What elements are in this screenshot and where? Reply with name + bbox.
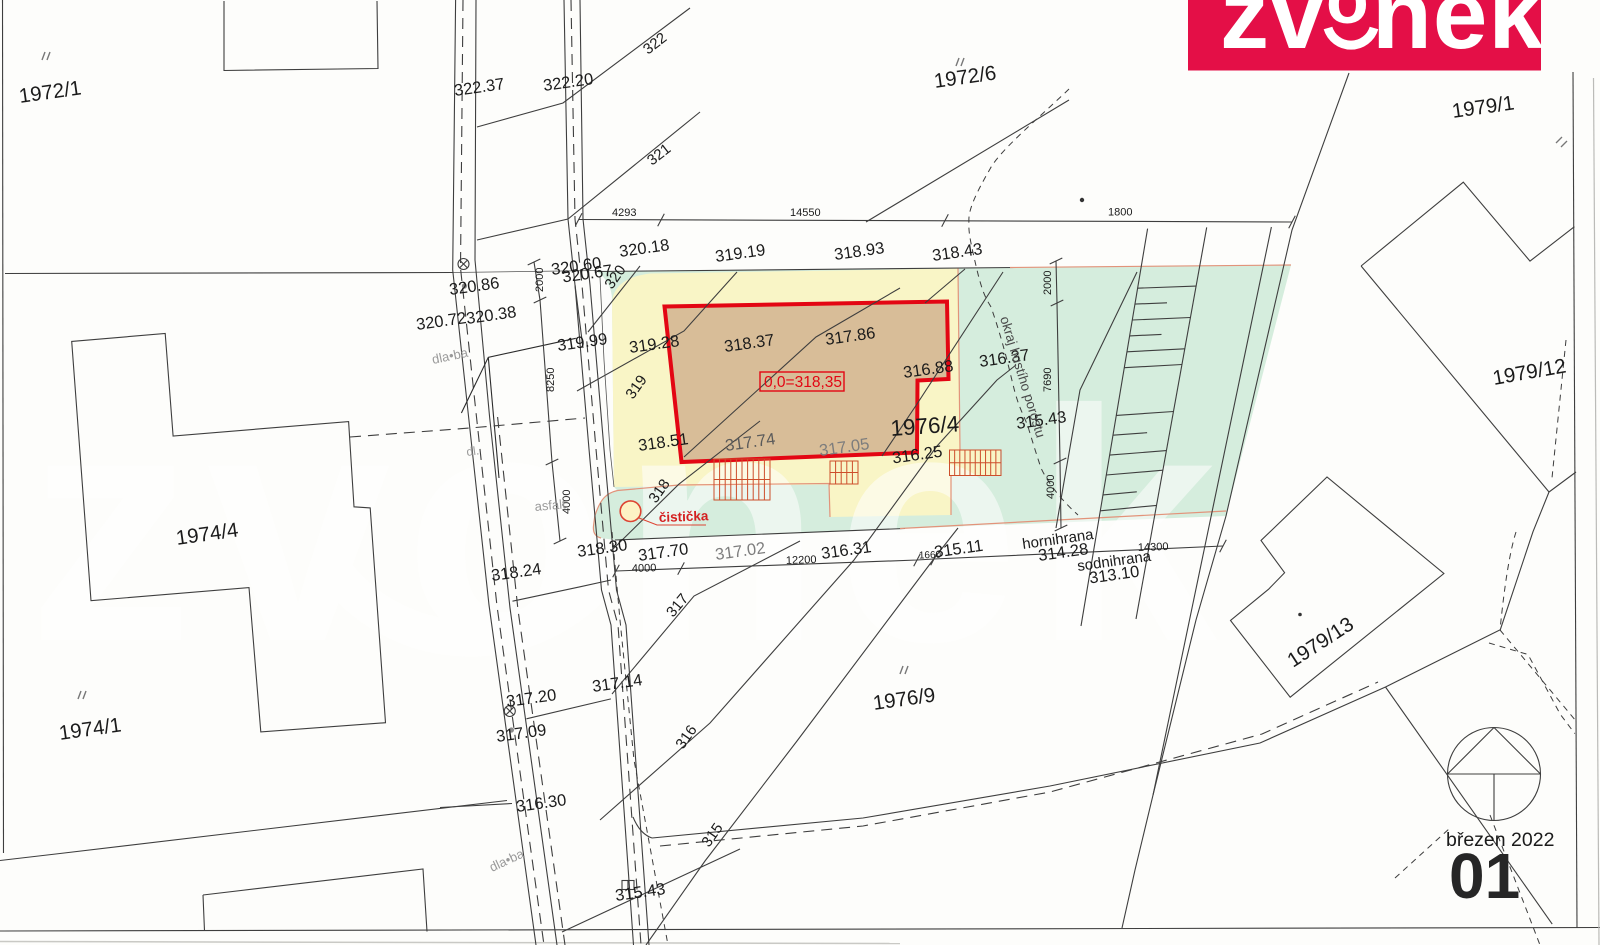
svg-text:8250: 8250: [545, 368, 557, 392]
svg-text:čistička: čistička: [659, 508, 710, 525]
svg-text:14300: 14300: [1138, 541, 1169, 554]
svg-text:4000: 4000: [1045, 475, 1057, 499]
svg-text:zv: zv: [1220, 0, 1326, 69]
svg-text:14550: 14550: [790, 207, 821, 219]
svg-text:1976/4: 1976/4: [890, 411, 960, 441]
svg-text:4293: 4293: [612, 207, 636, 219]
svg-text:0,0=318,35: 0,0=318,35: [764, 374, 842, 391]
svg-text:1800: 1800: [1108, 207, 1132, 219]
svg-text:12200: 12200: [786, 554, 817, 567]
svg-text:7690: 7690: [1042, 368, 1054, 392]
svg-text:1660: 1660: [919, 550, 942, 562]
svg-text:4000: 4000: [632, 562, 657, 575]
svg-text:2000: 2000: [1042, 271, 1054, 295]
svg-text:asfalt: asfalt: [534, 496, 567, 514]
svg-text:nek: nek: [1372, 0, 1544, 69]
svg-text:01: 01: [1449, 840, 1520, 912]
svg-text:2000: 2000: [534, 268, 546, 292]
svg-text:dl.: dl.: [465, 443, 480, 459]
